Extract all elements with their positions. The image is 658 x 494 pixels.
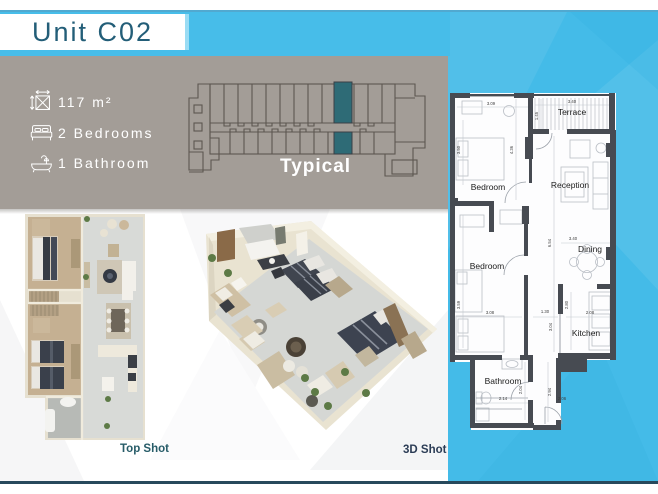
svg-text:2.04: 2.04 [518,385,523,394]
svg-text:3.04: 3.04 [548,322,553,331]
svg-text:2.08: 2.08 [586,310,595,315]
svg-text:2.06: 2.06 [558,396,567,401]
svg-text:1.45: 1.45 [534,111,539,120]
svg-text:3.08: 3.08 [486,310,495,315]
svg-text:4.36: 4.36 [509,145,514,154]
svg-text:3.09: 3.09 [487,101,496,106]
svg-text:3.40: 3.40 [569,236,578,241]
svg-text:Bedroom: Bedroom [471,182,506,192]
svg-text:Reception: Reception [551,180,590,190]
svg-text:Kitchen: Kitchen [572,328,601,338]
svg-text:3.59: 3.59 [456,300,461,309]
svg-text:Bedroom: Bedroom [470,261,505,271]
svg-text:2.94: 2.94 [547,387,552,396]
svg-text:3.50: 3.50 [456,145,461,154]
svg-text:2.14: 2.14 [499,396,508,401]
svg-text:2.80: 2.80 [564,300,569,309]
svg-text:Bathroom: Bathroom [485,376,522,386]
svg-text:Dining: Dining [578,244,602,254]
svg-text:6.54: 6.54 [547,238,552,247]
svg-text:3.40: 3.40 [568,99,577,104]
svg-text:Terrace: Terrace [558,107,587,117]
svg-text:1.30: 1.30 [541,309,550,314]
